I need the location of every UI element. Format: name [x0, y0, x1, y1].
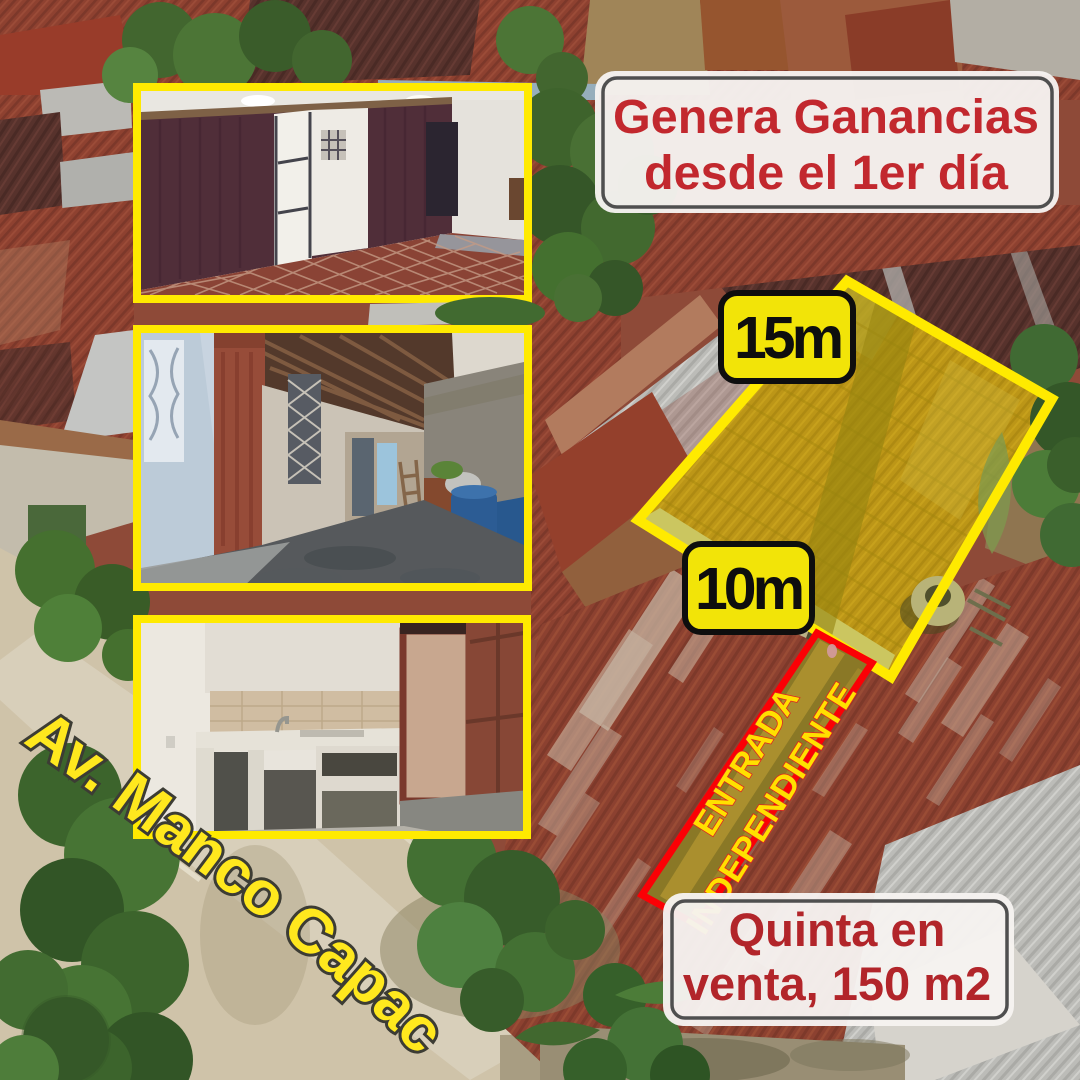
svg-text:10m: 10m [695, 556, 802, 622]
svg-text:desde el 1er día: desde el 1er día [644, 146, 1009, 200]
svg-text:15m: 15m [734, 305, 841, 371]
svg-text:Genera Ganancias: Genera Ganancias [613, 90, 1039, 144]
svg-text:venta, 150 m2: venta, 150 m2 [683, 957, 991, 1010]
svg-text:Quinta en: Quinta en [729, 903, 946, 956]
